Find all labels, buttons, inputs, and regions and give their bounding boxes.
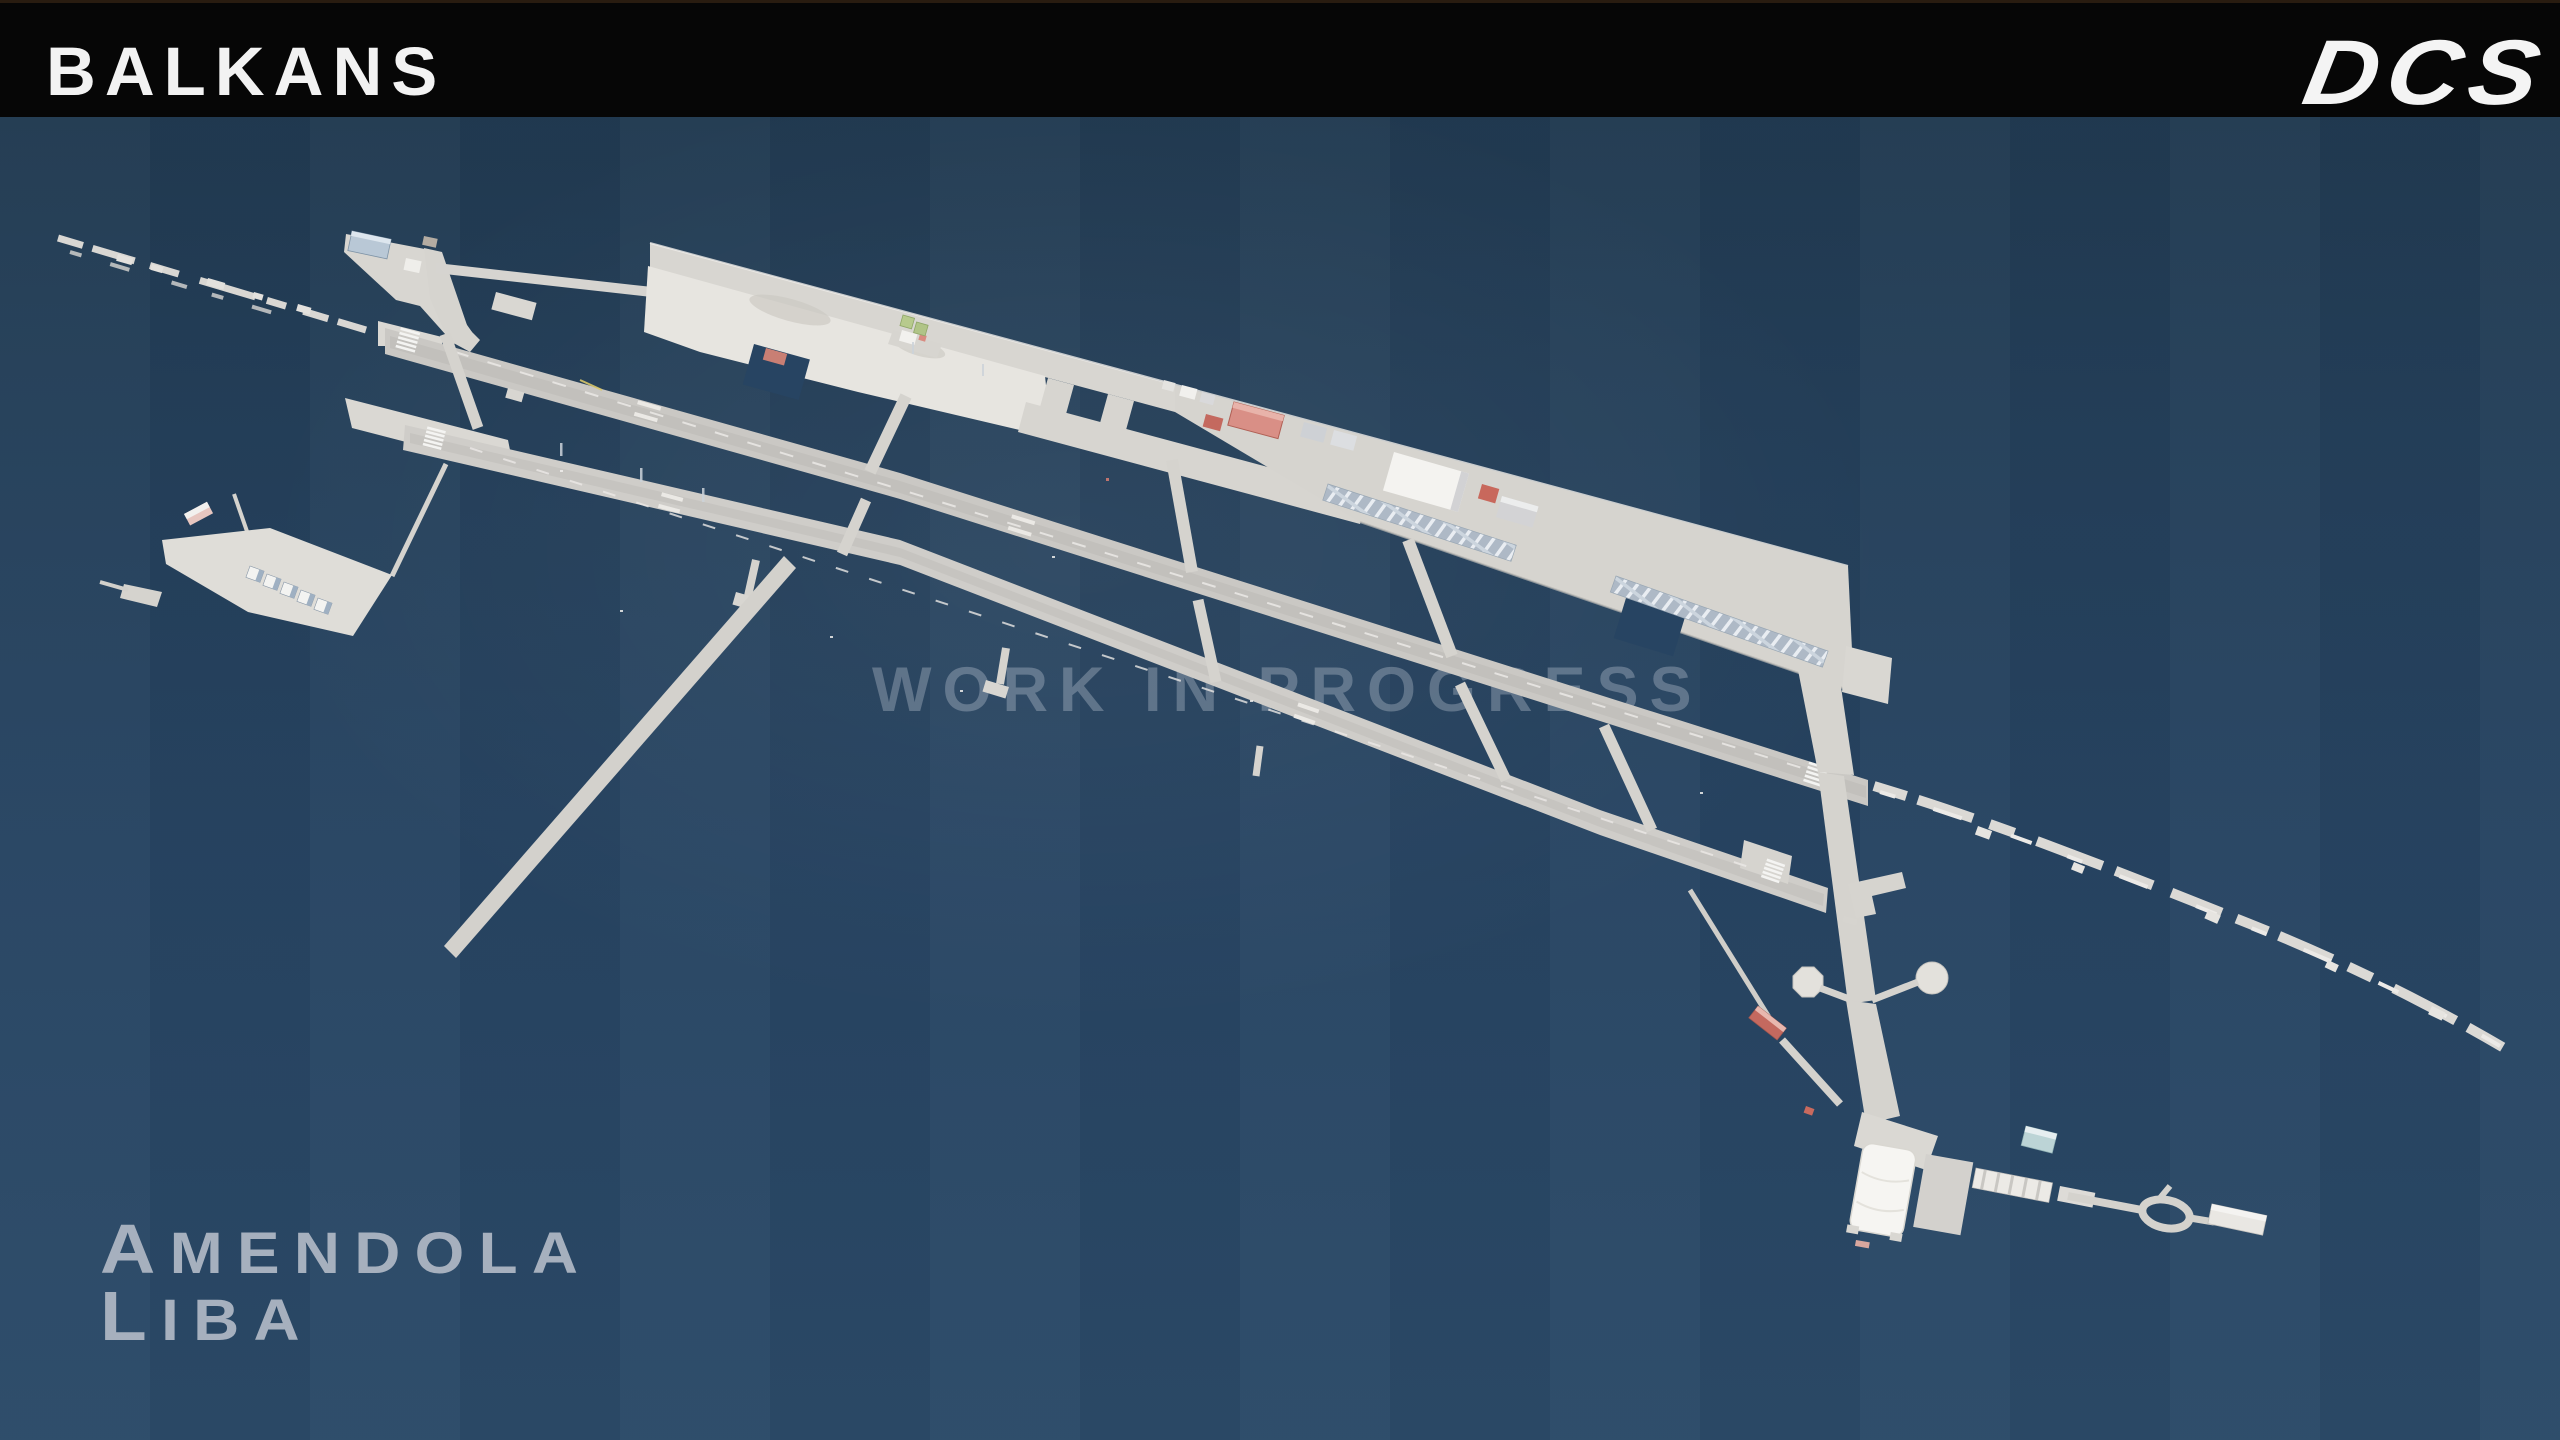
village-road-east xyxy=(1874,786,2504,1048)
title-bar: BALKANS DCS xyxy=(0,0,2560,117)
disused-strip xyxy=(444,556,796,958)
map-title: BALKANS xyxy=(46,32,446,111)
east-link-taxiway xyxy=(1690,670,1906,1022)
dispersal-access-road xyxy=(392,464,446,576)
west-dispersal-area xyxy=(100,502,392,636)
southeast-complex xyxy=(1749,962,2267,1248)
helipad-octagon xyxy=(1793,967,1823,997)
pink-roof-building xyxy=(184,502,213,526)
location-name: Amendola xyxy=(100,1218,592,1285)
village-buildings xyxy=(1975,826,2446,1021)
entrance-road-northwest xyxy=(58,238,366,330)
service-road xyxy=(1690,890,1772,1022)
teal-roof-building xyxy=(2021,1126,2057,1153)
location-label: Amendola Liba xyxy=(100,1218,592,1352)
dcs-logo: DCS xyxy=(2296,21,2556,126)
east-end-building xyxy=(2208,1204,2267,1235)
dome-hangar xyxy=(1846,1142,1917,1242)
promo-screenshot: WORK IN PROGRESS xyxy=(0,0,2560,1440)
long-barracks xyxy=(1972,1168,2052,1203)
perimeter-road xyxy=(436,268,652,292)
location-icao: Liba xyxy=(100,1285,592,1352)
loop-road xyxy=(2140,1195,2193,1232)
helipad-circle xyxy=(1916,962,1948,994)
runway-south xyxy=(345,398,1828,913)
